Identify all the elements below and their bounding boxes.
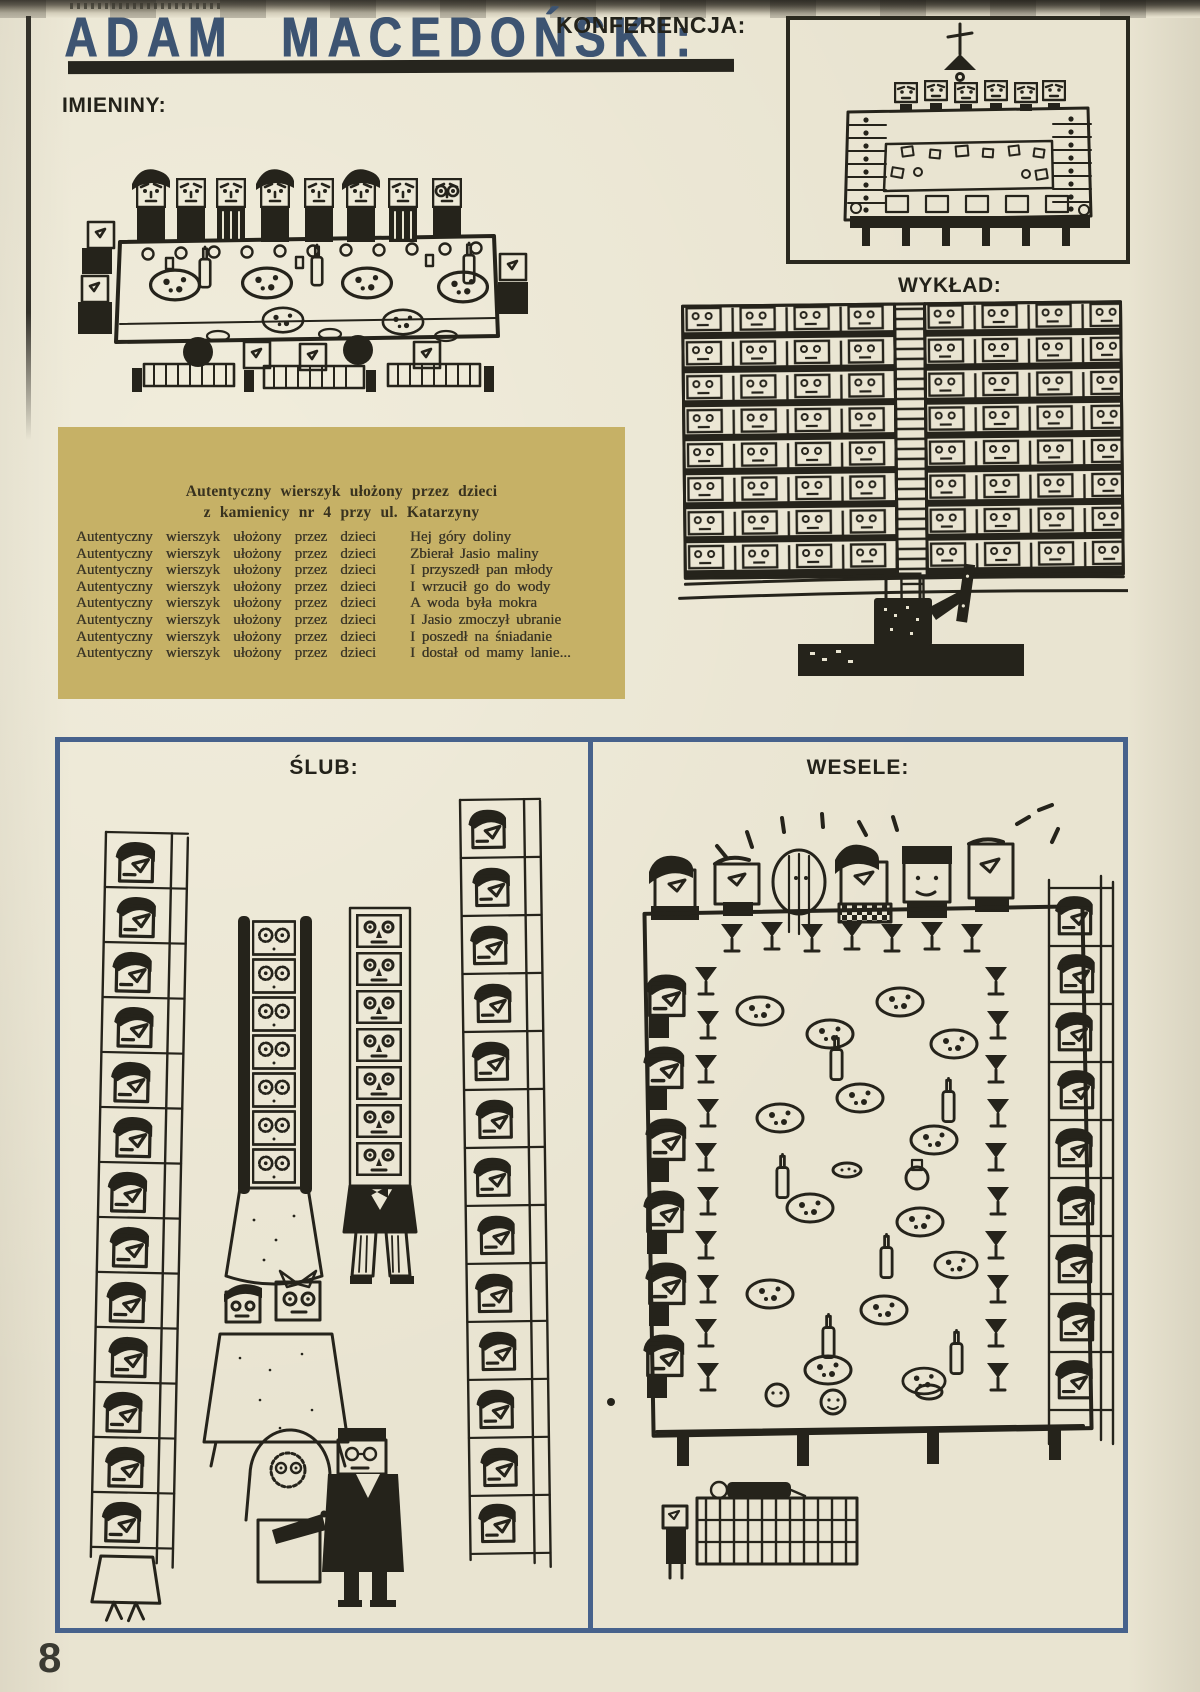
poem-left-column: Autentyczny wierszyk ułożony przez dziec… <box>76 529 376 662</box>
seated-heads-top-view <box>863 116 1073 212</box>
bottom-panel-frame: ŚLUB: <box>55 737 1128 1633</box>
title-underline-bar <box>68 59 734 74</box>
poem-right-line: I poszedł na śniadanie <box>410 629 620 646</box>
poem-right-line: I dostał od mamy lanie... <box>410 645 620 662</box>
poem-right-column: Hej góry doliny Zbierał Jasio maliny I p… <box>410 529 620 662</box>
center-aisle-stairs <box>895 304 928 576</box>
section-label-konferencja: KONFERENCJA: <box>556 12 746 39</box>
audience-seats-left <box>683 304 898 578</box>
poem-left-line: Autentyczny wierszyk ułożony przez dziec… <box>76 629 376 646</box>
cheer-dashes <box>717 805 1058 857</box>
poem-left-line: Autentyczny wierszyk ułożony przez dziec… <box>76 529 376 546</box>
wesele-drawing <box>597 780 1115 1626</box>
table-legs <box>862 228 1070 246</box>
bride-witness-column <box>226 916 322 1284</box>
magazine-page: ADAM MACEDOŃSKI: KONFERENCJA: IMIENINY: … <box>0 0 1200 1692</box>
registry-office-scene <box>204 1271 404 1607</box>
martini-column-right <box>985 967 1009 1390</box>
poem-box: Autentyczny wierszyk ułożony przez dziec… <box>58 427 625 699</box>
guest-right <box>498 254 528 314</box>
poem-left-line: Autentyczny wierszyk ułożony przez dziec… <box>76 645 376 662</box>
section-label-imieniny: IMIENINY: <box>62 94 166 118</box>
poem-left-line: Autentyczny wierszyk ułożony przez dziec… <box>76 546 376 563</box>
plates <box>151 268 488 334</box>
bride-head <box>773 850 825 934</box>
slub-drawing <box>62 780 577 1626</box>
papers-on-table <box>891 145 1048 179</box>
page-number: 8 <box>38 1634 61 1682</box>
conference-table <box>845 108 1091 220</box>
section-label-wyklad: WYKŁAD: <box>898 274 1001 298</box>
wesele-panel: WESELE: <box>593 742 1123 1628</box>
chairs <box>886 196 1068 212</box>
poem-right-line: Zbierał Jasio maliny <box>410 546 620 563</box>
lamp-icon <box>944 24 976 81</box>
wedding-guests-top <box>649 839 1013 934</box>
konferencja-drawing <box>790 20 1126 260</box>
wedding-queue-right <box>460 799 551 1568</box>
section-label-wesele: WESELE: <box>593 756 1123 780</box>
tired-guest-scene <box>663 1482 857 1578</box>
section-label-slub: ŚLUB: <box>60 756 588 780</box>
feast-plates <box>737 988 977 1394</box>
poem-left-line: Autentyczny wierszyk ułożony przez dziec… <box>76 612 376 629</box>
poem-heading-line2: z kamienicy nr 4 przy ul. Katarzyny <box>58 504 625 522</box>
guest-left <box>78 222 114 334</box>
poem-right-line: I wrzucił go do wody <box>410 579 620 596</box>
poem-right-line: I Jasio zmoczył ubranie <box>410 612 620 629</box>
konferencja-drawing-frame <box>786 16 1130 264</box>
martini-column-left <box>695 967 719 1390</box>
poem-left-line: Autentyczny wierszyk ułożony przez dziec… <box>76 595 376 612</box>
slub-panel: ŚLUB: <box>60 742 588 1628</box>
martini-glasses-top <box>721 922 983 951</box>
poem-right-line: A woda była mokra <box>410 595 620 612</box>
guest-bodies <box>137 208 461 242</box>
poem-left-line: Autentyczny wierszyk ułożony przez dziec… <box>76 579 376 596</box>
guests-right-tower <box>1049 876 1113 1444</box>
poem-heading-line1: Autentyczny wierszyk ułożony przez dziec… <box>58 483 625 501</box>
wedding-queue-left <box>89 832 187 1622</box>
groom-witness-column <box>344 908 416 1284</box>
scanned-page-left-edge <box>26 16 31 440</box>
wyklad-drawing <box>678 296 1128 680</box>
delegate-faces <box>895 81 1065 102</box>
poem-right-line: Hej góry doliny <box>410 529 620 546</box>
imieniny-drawing <box>48 126 563 394</box>
poem-left-line: Autentyczny wierszyk ułożony przez dziec… <box>76 562 376 579</box>
hair-blobs <box>132 169 380 190</box>
audience-seats-right <box>925 302 1124 576</box>
poem-right-line: I przyszedł pan młody <box>410 562 620 579</box>
guests-top-row <box>137 179 461 207</box>
